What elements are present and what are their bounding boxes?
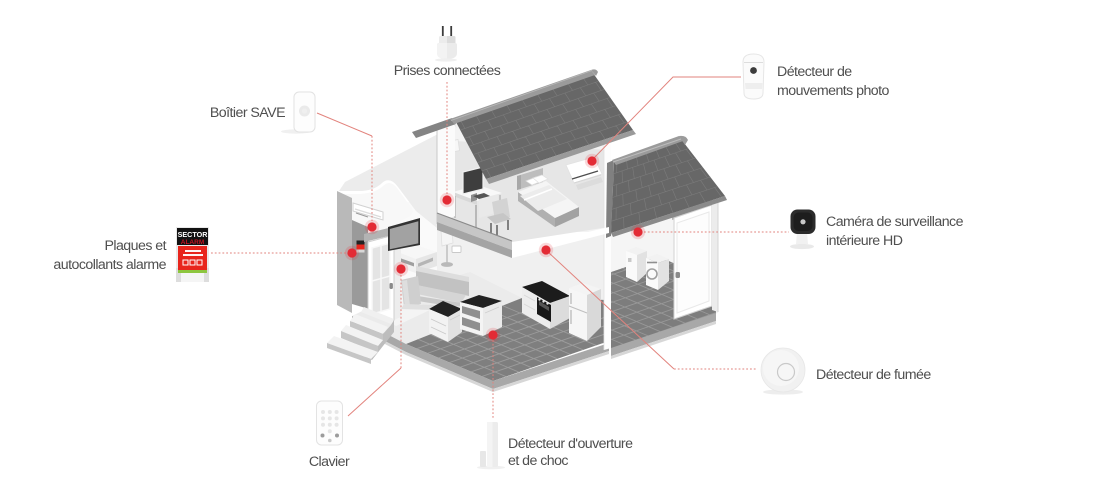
svg-text:Détecteur d'ouverture: Détecteur d'ouverture (508, 436, 633, 452)
svg-text:mouvements photo: mouvements photo (777, 83, 890, 99)
svg-text:et de choc: et de choc (508, 453, 568, 469)
svg-text:SECTOR: SECTOR (178, 230, 209, 239)
svg-text:Détecteur de: Détecteur de (777, 64, 852, 80)
svg-text:Boîtier SAVE: Boîtier SAVE (210, 105, 285, 121)
svg-text:autocollants alarme: autocollants alarme (53, 257, 166, 273)
svg-text:Plaques et: Plaques et (104, 238, 166, 254)
svg-text:Clavier: Clavier (309, 454, 350, 470)
svg-text:intérieure HD: intérieure HD (826, 233, 903, 249)
svg-text:Caméra de surveillance: Caméra de surveillance (826, 214, 964, 230)
svg-text:Détecteur de fumée: Détecteur de fumée (816, 367, 931, 383)
svg-text:ALARM: ALARM (181, 239, 204, 246)
svg-text:Prises connectées: Prises connectées (394, 63, 501, 79)
